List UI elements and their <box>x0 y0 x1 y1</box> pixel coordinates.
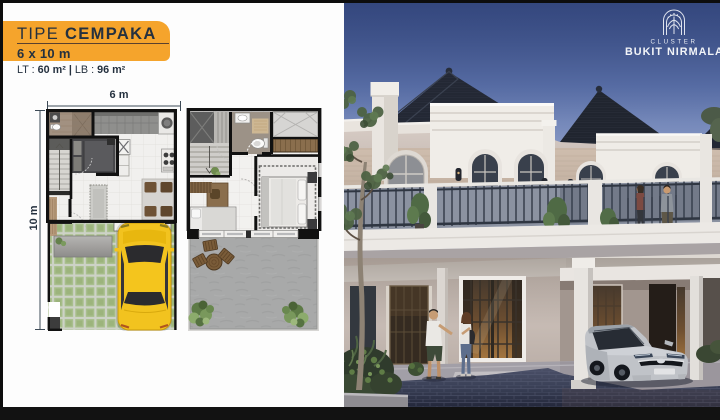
svg-text:CLUSTER: CLUSTER <box>650 39 697 46</box>
svg-text:BUKIT NIRMALA: BUKIT NIRMALA <box>625 46 720 58</box>
